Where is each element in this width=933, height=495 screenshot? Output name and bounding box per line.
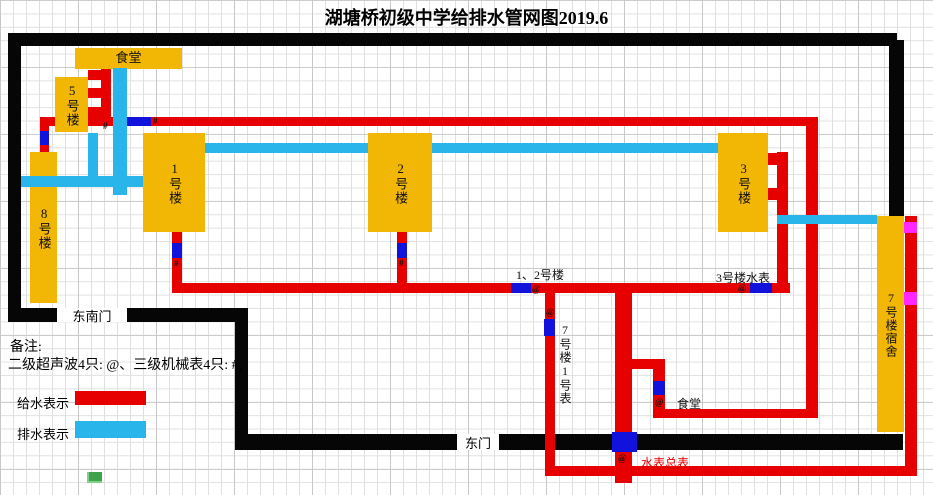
symbol-mechanical-bld1: # [174,259,179,268]
building-3: 3号楼 [718,133,768,232]
pipe-supply-right-downpipe [806,117,818,418]
pipe-drain-bld2-bld3 [432,143,718,153]
gate-southeast-label: 东南门 [72,306,111,325]
legend-remark-line: 二级超声波4只: @、三级机械表4只: #; [8,354,243,374]
building-3-label: 3号楼 [735,161,751,205]
marker-dorm-lower [904,292,917,305]
boundary-connector-vertical [235,308,248,450]
meter-bld1 [172,243,182,258]
building-2: 2号楼 [368,133,432,232]
gate-east-label: 东门 [465,433,491,452]
pipe-drain-bld3-dorm [777,215,877,224]
symbol-ultrasonic-7: @ [546,308,554,317]
legend-drain-label: 排水表示 [17,424,69,443]
pipe-drain-bld5-vertical [88,133,98,178]
annotation-meter-7-no1: 7号楼1号表 [557,323,574,405]
symbol-ultrasonic-canteen: @ [655,398,663,407]
green-marker [87,472,102,483]
symbol-mechanical-canteen-trunk: # [103,122,108,131]
building-5: 5号楼 [55,77,88,132]
symbol-mechanical-bld2: # [399,259,404,268]
boundary-left [8,33,21,322]
gate-southeast: 东南门 [57,308,127,322]
marker-dorm-upper [904,222,917,233]
annotation-meter-main: 水表总表 [641,454,689,471]
meter-bld8-drop [40,131,49,145]
building-7-dorm: 7号楼宿舍 [877,216,904,432]
boundary-right-upper [889,40,904,216]
pipe-supply-main-lower [172,283,790,293]
meter-top-main [127,117,151,126]
legend-drain-swatch [75,421,146,438]
legend-supply-label: 给水表示 [17,393,69,412]
building-7-dorm-label: 7号楼宿舍 [883,291,898,358]
pipe-supply-canteen-nub3 [88,107,101,117]
annotation-meter-canteen: 食堂 [677,395,701,412]
gate-east: 东门 [457,434,499,450]
annotation-meter-3: 3号楼水表 [716,269,770,286]
meter-1-2 [511,283,531,293]
symbol-ultrasonic-main: @ [618,454,626,463]
pipe-network-diagram: 湖塘桥初级中学给排水管网图2019.6 东南门 东门 食堂 5号楼 8号楼 1号… [0,0,933,495]
symbol-ultrasonic-1-2: @ [532,285,540,294]
diagram-title: 湖塘桥初级中学给排水管网图2019.6 [0,4,933,30]
legend-supply-swatch [75,391,146,405]
pipe-supply-bottom-main [545,466,917,476]
building-2-label: 2号楼 [392,161,408,205]
pipe-drain-left-horizontal [21,176,143,187]
symbol-mechanical-top-main: # [153,117,158,126]
meter-bld2 [397,243,407,258]
meter-main-total [612,432,637,452]
building-1-label: 1号楼 [166,161,182,205]
meter-canteen-branch [653,381,665,395]
building-1: 1号楼 [143,133,205,232]
building-canteen-top-label: 食堂 [115,50,141,66]
building-canteen-top: 食堂 [75,48,182,69]
pipe-drain-bld1-bld2 [205,143,368,153]
pipe-supply-canteen-nub2 [88,88,101,98]
boundary-east [235,434,903,450]
meter-7-no1 [544,319,555,336]
boundary-southeast [8,308,247,322]
legend-remark-title: 备注: [10,336,42,356]
boundary-top [8,33,897,46]
building-8: 8号楼 [30,152,57,303]
building-8-label: 8号楼 [35,206,51,250]
pipe-supply-right-edge-riser [905,216,917,476]
annotation-meter-1-2: 1、2号楼 [516,266,564,283]
pipe-supply-canteen-trunk [101,68,111,126]
building-5-label: 5号楼 [63,83,79,127]
pipe-supply-canteen-nub1 [88,70,101,80]
